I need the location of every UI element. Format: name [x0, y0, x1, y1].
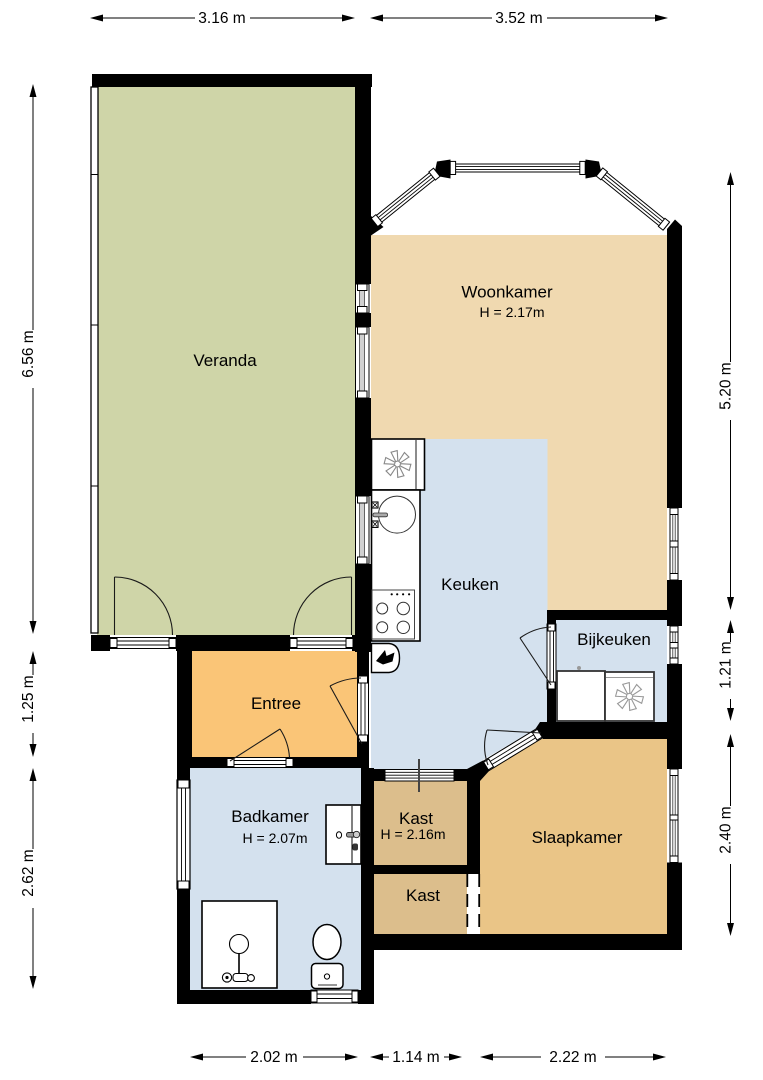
- svg-text:H = 2.16m: H = 2.16m: [381, 826, 446, 842]
- svg-text:2.40 m: 2.40 m: [718, 806, 735, 853]
- svg-text:3.52 m: 3.52 m: [495, 10, 542, 27]
- svg-text:H = 2.07m: H = 2.07m: [243, 830, 308, 846]
- svg-text:Woonkamer: Woonkamer: [461, 283, 553, 302]
- svg-text:Veranda: Veranda: [193, 351, 257, 370]
- svg-text:Kast: Kast: [406, 886, 440, 905]
- svg-text:2.02 m: 2.02 m: [250, 1049, 297, 1066]
- svg-text:2.22 m: 2.22 m: [549, 1049, 596, 1066]
- svg-text:5.20 m: 5.20 m: [718, 362, 735, 409]
- svg-text:1.21 m: 1.21 m: [718, 641, 735, 688]
- svg-text:Keuken: Keuken: [441, 575, 499, 594]
- svg-text:Entree: Entree: [251, 694, 301, 713]
- svg-text:Slaapkamer: Slaapkamer: [532, 828, 623, 847]
- svg-text:H = 2.17m: H = 2.17m: [480, 304, 545, 320]
- svg-text:6.56 m: 6.56 m: [20, 330, 37, 377]
- svg-text:3.16 m: 3.16 m: [198, 10, 245, 27]
- svg-text:Badkamer: Badkamer: [231, 807, 309, 826]
- svg-text:2.62 m: 2.62 m: [20, 849, 37, 896]
- svg-text:1.14 m: 1.14 m: [392, 1049, 439, 1066]
- svg-text:Bijkeuken: Bijkeuken: [577, 630, 651, 649]
- svg-text:1.25 m: 1.25 m: [20, 675, 37, 722]
